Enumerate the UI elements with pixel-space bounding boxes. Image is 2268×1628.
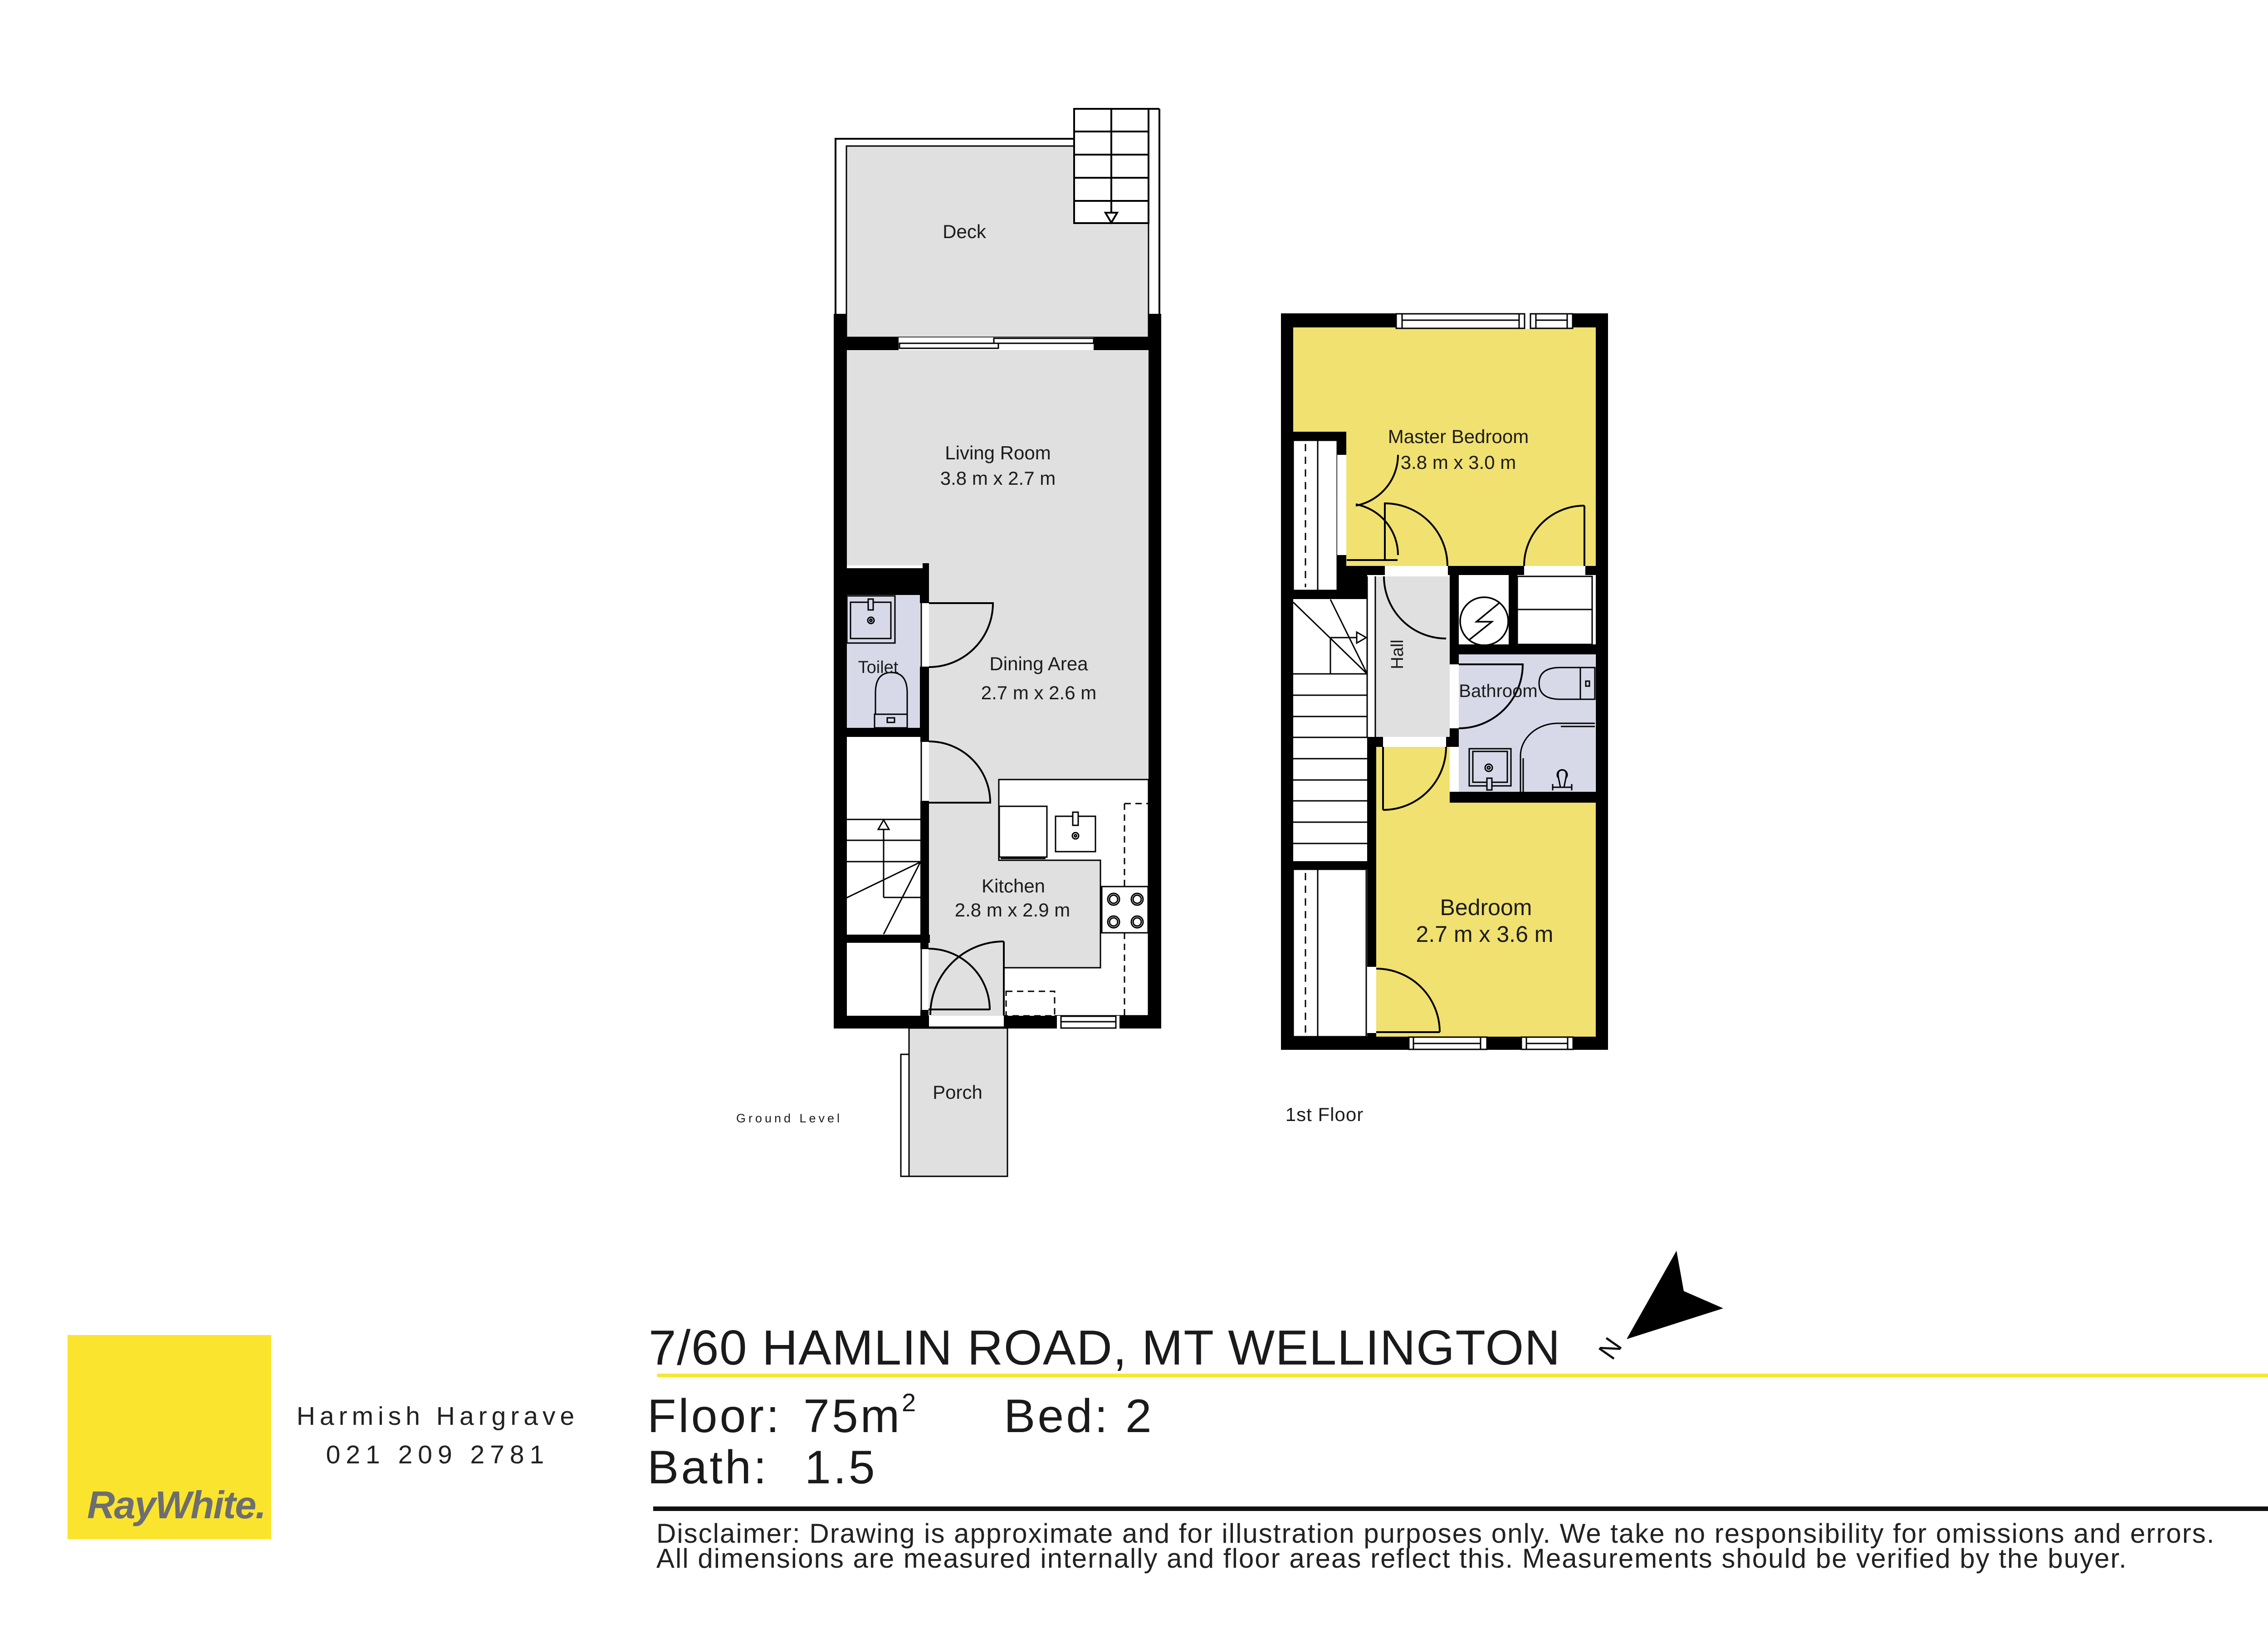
svg-text:Master Bedroom: Master Bedroom bbox=[1388, 426, 1529, 447]
svg-text:1.5: 1.5 bbox=[805, 1441, 877, 1494]
svg-text:2.8 m x 2.9 m: 2.8 m x 2.9 m bbox=[955, 899, 1070, 921]
svg-text:021 209 2781: 021 209 2781 bbox=[326, 1440, 550, 1469]
svg-text:2.7 m x 2.6 m: 2.7 m x 2.6 m bbox=[981, 682, 1096, 703]
svg-text:Dining Area: Dining Area bbox=[989, 653, 1088, 674]
svg-text:Harmish Hargrave: Harmish Hargrave bbox=[297, 1402, 579, 1431]
svg-text:Toilet: Toilet bbox=[858, 658, 899, 677]
svg-text:Bedroom: Bedroom bbox=[1440, 895, 1532, 920]
svg-text:75m: 75m bbox=[803, 1390, 902, 1443]
svg-text:Bathroom: Bathroom bbox=[1459, 681, 1537, 701]
svg-text:All dimensions are measured in: All dimensions are measured internally a… bbox=[656, 1543, 2127, 1574]
svg-text:Floor:: Floor: bbox=[647, 1390, 782, 1443]
svg-text:3.8 m x 3.0 m: 3.8 m x 3.0 m bbox=[1401, 452, 1516, 473]
svg-text:Living Room: Living Room bbox=[945, 442, 1051, 463]
svg-text:Deck: Deck bbox=[943, 221, 987, 242]
svg-text:Porch: Porch bbox=[933, 1082, 982, 1103]
svg-text:7/60 HAMLIN ROAD, MT WELLINGTO: 7/60 HAMLIN ROAD, MT WELLINGTON bbox=[649, 1320, 1561, 1375]
svg-text:Bath:: Bath: bbox=[647, 1441, 769, 1494]
svg-text:2: 2 bbox=[902, 1388, 916, 1417]
svg-text:Kitchen: Kitchen bbox=[982, 875, 1045, 897]
svg-text:RayWhite.: RayWhite. bbox=[87, 1484, 265, 1527]
svg-text:2.7 m x 3.6 m: 2.7 m x 3.6 m bbox=[1416, 921, 1554, 947]
svg-text:Ground Level: Ground Level bbox=[736, 1111, 842, 1125]
svg-text:Bed: 2: Bed: 2 bbox=[1004, 1390, 1154, 1443]
svg-text:1st Floor: 1st Floor bbox=[1286, 1104, 1364, 1125]
svg-text:3.8 m x 2.7 m: 3.8 m x 2.7 m bbox=[940, 468, 1056, 489]
svg-text:Hall: Hall bbox=[1388, 639, 1407, 669]
